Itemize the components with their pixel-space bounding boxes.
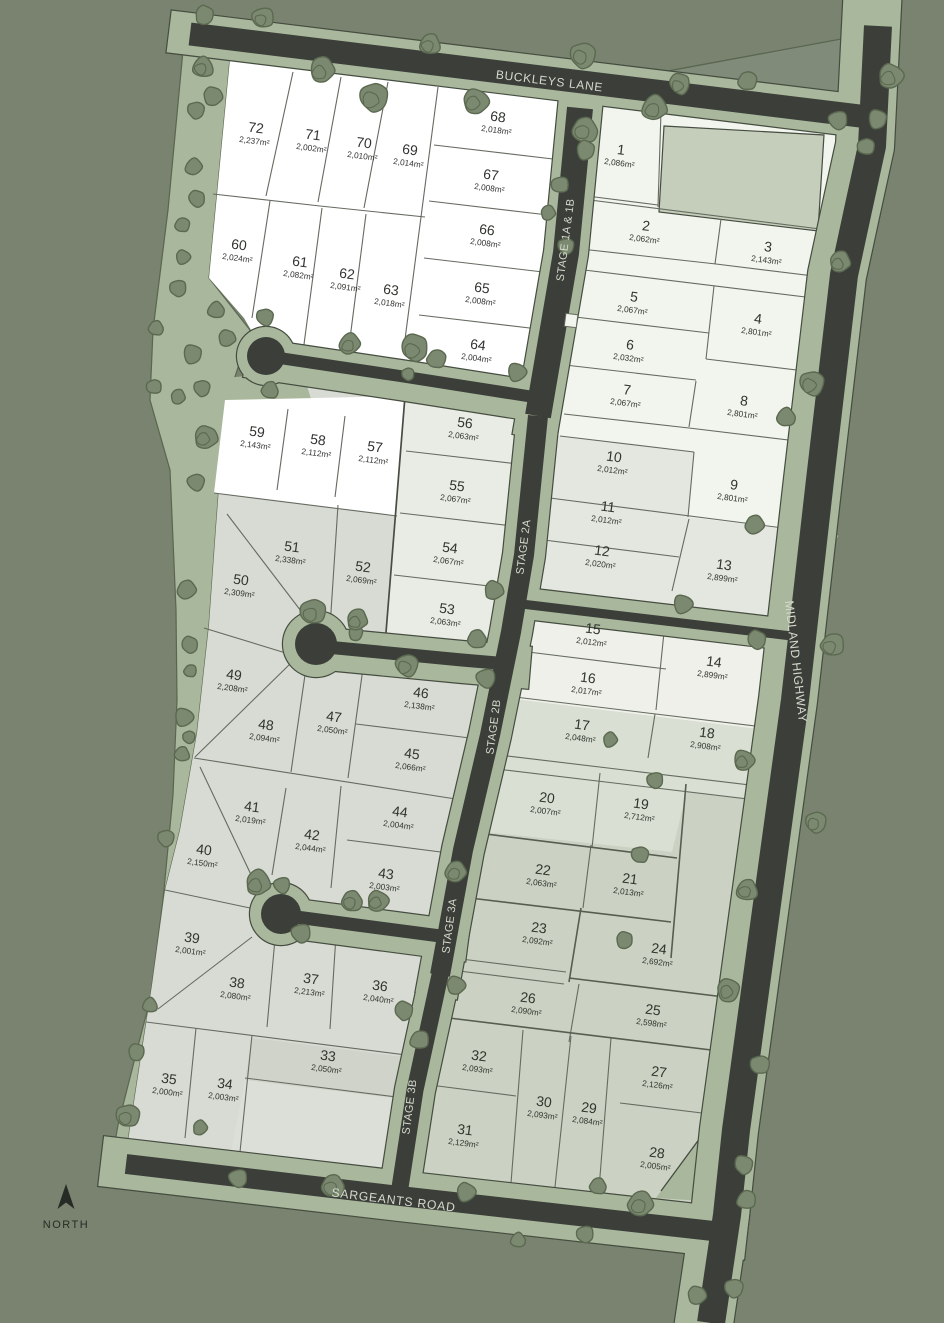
svg-text:66: 66 (478, 221, 496, 239)
svg-text:68: 68 (489, 108, 507, 126)
svg-text:11: 11 (600, 498, 617, 516)
svg-text:12: 12 (593, 542, 611, 560)
svg-text:16: 16 (579, 669, 597, 687)
svg-text:25: 25 (644, 1001, 662, 1019)
svg-text:63: 63 (382, 281, 400, 299)
svg-text:40: 40 (195, 841, 213, 859)
svg-text:13: 13 (715, 556, 733, 574)
svg-text:33: 33 (319, 1047, 337, 1065)
svg-text:24: 24 (650, 940, 668, 958)
svg-text:49: 49 (225, 666, 243, 684)
svg-text:14: 14 (705, 653, 723, 671)
svg-text:60: 60 (230, 236, 248, 254)
svg-text:35: 35 (160, 1070, 178, 1088)
svg-text:58: 58 (309, 431, 327, 449)
svg-text:21: 21 (621, 870, 639, 888)
svg-text:22: 22 (534, 861, 552, 879)
svg-text:51: 51 (283, 538, 301, 556)
svg-text:65: 65 (473, 279, 491, 297)
svg-text:29: 29 (580, 1099, 598, 1117)
svg-text:19: 19 (632, 795, 650, 813)
svg-text:55: 55 (448, 477, 466, 495)
svg-text:70: 70 (355, 134, 373, 152)
svg-text:10: 10 (605, 448, 623, 466)
svg-text:30: 30 (535, 1093, 553, 1111)
svg-text:56: 56 (456, 414, 474, 432)
svg-text:54: 54 (441, 539, 459, 557)
svg-text:28: 28 (648, 1144, 666, 1162)
svg-text:18: 18 (698, 724, 716, 742)
svg-text:59: 59 (248, 423, 266, 441)
svg-text:50: 50 (232, 571, 250, 589)
svg-text:32: 32 (470, 1047, 488, 1065)
svg-text:43: 43 (377, 865, 395, 883)
svg-text:31: 31 (456, 1121, 474, 1139)
svg-text:72: 72 (247, 119, 265, 137)
svg-text:34: 34 (216, 1075, 234, 1093)
svg-text:48: 48 (257, 716, 275, 734)
svg-text:23: 23 (530, 919, 548, 937)
svg-text:69: 69 (401, 141, 419, 159)
svg-text:45: 45 (403, 745, 421, 763)
svg-text:37: 37 (302, 970, 320, 988)
svg-text:53: 53 (438, 600, 456, 618)
svg-text:67: 67 (482, 166, 500, 184)
svg-text:27: 27 (650, 1063, 668, 1081)
svg-text:26: 26 (519, 989, 537, 1007)
svg-text:39: 39 (183, 929, 201, 947)
svg-text:NORTH: NORTH (43, 1219, 89, 1231)
svg-text:64: 64 (469, 336, 487, 354)
svg-text:44: 44 (391, 803, 409, 821)
svg-text:46: 46 (412, 684, 430, 702)
svg-text:38: 38 (228, 974, 246, 992)
svg-text:36: 36 (371, 977, 389, 995)
svg-text:42: 42 (303, 826, 321, 844)
svg-text:47: 47 (325, 708, 343, 726)
svg-text:57: 57 (366, 438, 384, 456)
svg-text:15: 15 (584, 620, 602, 638)
svg-text:52: 52 (354, 558, 372, 576)
svg-text:61: 61 (291, 253, 309, 271)
svg-text:20: 20 (538, 789, 556, 807)
svg-text:71: 71 (304, 126, 322, 144)
svg-text:17: 17 (573, 716, 591, 734)
svg-text:41: 41 (243, 798, 261, 816)
svg-text:62: 62 (338, 265, 356, 283)
